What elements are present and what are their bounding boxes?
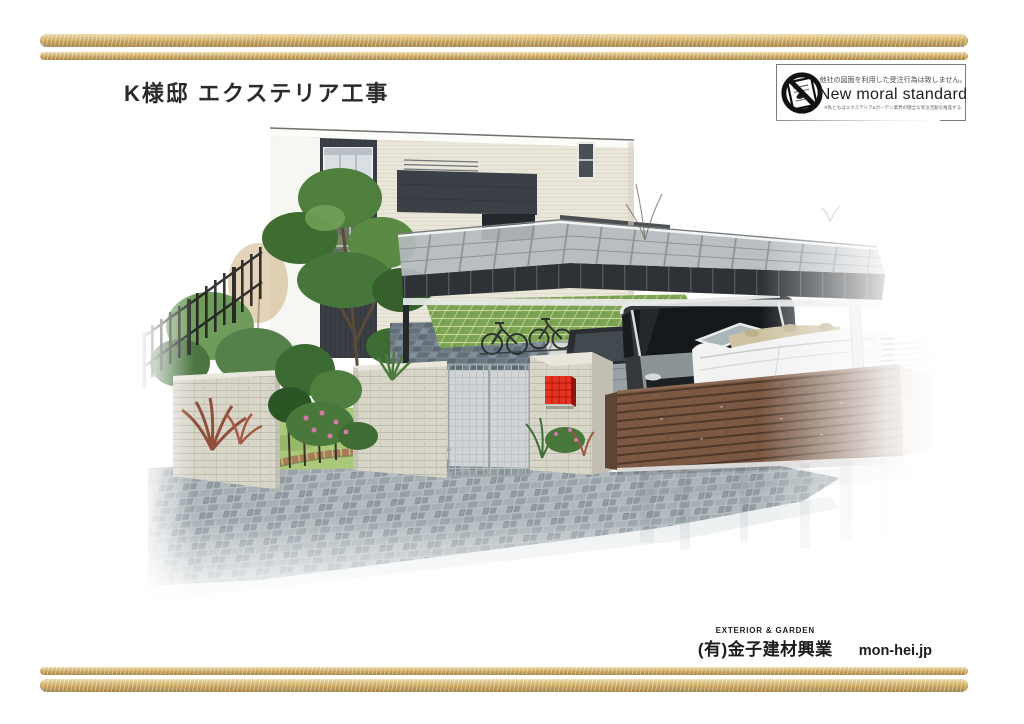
footer-company: (有)金子建材興業 [698,635,833,660]
badge-main-text: New moral standard [819,86,968,104]
moral-standard-badge: 他社の図面を利用した受注行為は致しません。 New moral standard… [776,64,966,121]
presentation-page: K様邸 エクステリア工事 他社の図面を利用した受注行為は致しません。 New m… [0,0,1024,724]
mesh-gate [448,364,530,476]
badge-top-text: 他社の図面を利用した受注行為は致しません。 [820,75,967,85]
footer-website: mon-hei.jp [859,643,932,660]
page-title: K様邸 エクステリア工事 [124,76,389,108]
footer: EXTERIOR & GARDEN (有)金子建材興業 mon-hei.jp [698,626,932,660]
gold-rule-top-thin [40,52,968,60]
badge-text-block: 他社の図面を利用した受注行為は致しません。 New moral standard… [824,75,965,111]
gold-rule-top-thick [40,34,968,47]
exterior-rendering [140,118,940,620]
gold-rule-bottom-thick [40,679,968,692]
footer-tagline: EXTERIOR & GARDEN [716,626,815,635]
no-copy-icon [780,71,824,115]
gold-rule-bottom-thin [40,667,968,675]
badge-bottom-text: ※私どもはエクステリア&ガーデン業界の健全な受注活動を推進するキャンペーンに賛同… [824,105,962,111]
